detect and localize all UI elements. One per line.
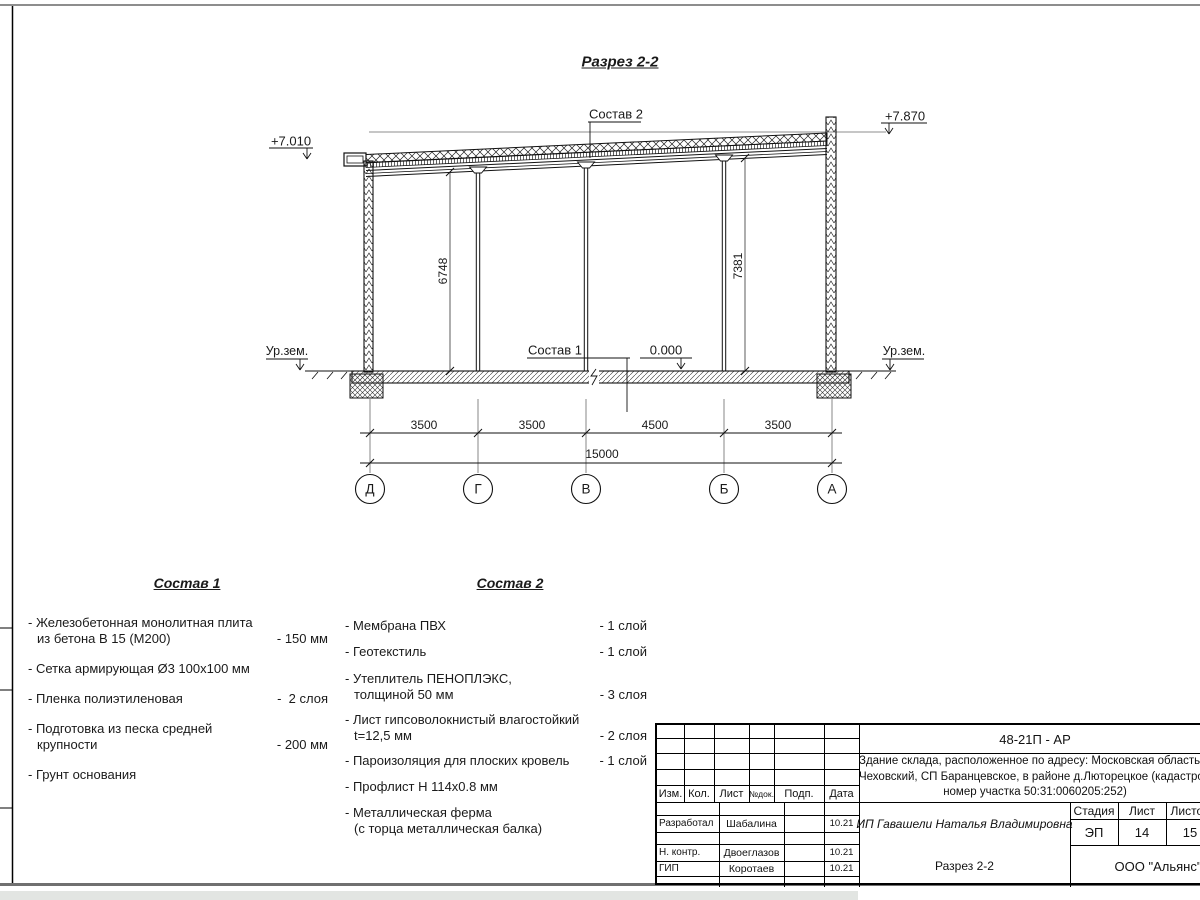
- axis-label-g: Г: [474, 482, 481, 497]
- drawing-sheet: { "sheet": { "title": "Разрез 2-2" }, "s…: [0, 0, 1200, 900]
- col-podp: Подп.: [774, 785, 824, 802]
- layer-qty: - 1 слой: [599, 753, 647, 769]
- list-item: - Подготовка из песка средней крупности …: [28, 721, 328, 752]
- sheets-total: 15: [1166, 819, 1200, 845]
- layer-name: - Утеплитель ПЕНОПЛЭКС, толщиной 50 мм: [345, 671, 512, 702]
- elevation-left-label: +7.010: [271, 134, 311, 149]
- layer-qty: - 1 слой: [599, 644, 647, 660]
- row-name: Шабалина: [719, 815, 784, 832]
- ground-level-label-right: Ур.зем.: [883, 344, 925, 358]
- list-item: - Мембрана ПВХ - 1 слой: [345, 618, 647, 634]
- row-date: 10.21: [824, 861, 859, 876]
- col-ndok: №док.: [749, 785, 774, 802]
- columns: [470, 155, 733, 371]
- zero-level-arrow: [677, 358, 685, 369]
- col-data: Дата: [824, 785, 859, 802]
- roof-assembly: [344, 132, 886, 177]
- col-kol: Кол.: [684, 785, 714, 802]
- address-line: номер участка 50:31:0060205:252): [859, 785, 1200, 801]
- drawing-name: Разрез 2-2: [859, 845, 1070, 887]
- col-list: Лист: [714, 785, 749, 802]
- list-item: - Пароизоляция для плоских кровель - 1 с…: [345, 753, 647, 769]
- layer-qty: - 150 мм: [277, 631, 328, 647]
- address-line: Здание склада, расположенное по адресу: …: [859, 754, 1200, 770]
- elevation-arrow-right: [885, 123, 893, 134]
- sheet-label: Лист: [1118, 802, 1166, 819]
- layer-name: - Подготовка из песка средней крупности: [28, 721, 212, 752]
- floor-slab: [305, 369, 896, 398]
- total-dim: 15000: [585, 447, 618, 461]
- ground-level-label-left: Ур.зем.: [266, 344, 308, 358]
- sheets-label: Листов: [1166, 802, 1200, 819]
- address-line: Чеховский, СП Баранцевское, в районе д.Л…: [859, 770, 1200, 786]
- layer-name: - Сетка армирующая Ø3 100х100 мм: [28, 661, 250, 677]
- elevation-right-label: +7.870: [885, 109, 925, 124]
- drawing-title: Разрез 2-2: [581, 54, 658, 71]
- title-block: Изм. Кол. Лист №док. Подп. Дата Разработ…: [655, 723, 1200, 885]
- company-name: ООО "Альянс": [1070, 845, 1200, 887]
- stage-value: ЭП: [1070, 819, 1118, 845]
- list-item: - Металлическая ферма (с торца металличе…: [345, 805, 647, 836]
- layer-name: - Железобетонная монолитная плита из бет…: [28, 615, 253, 646]
- layer-name: - Грунт основания: [28, 767, 136, 783]
- list-item: - Грунт основания: [28, 767, 328, 783]
- list-item: - Лист гипсоволокнистый влагостойкий t=1…: [345, 712, 647, 743]
- row-name: Коротаев: [719, 861, 784, 876]
- layer-qty: - 3 слоя: [600, 687, 647, 703]
- axis-label-b: Б: [720, 482, 729, 497]
- list-item: - Геотекстиль - 1 слой: [345, 644, 647, 660]
- axis-label-v: В: [581, 482, 590, 497]
- row-date: 10.21: [824, 815, 859, 832]
- stage-label: Стадия: [1070, 802, 1118, 819]
- axis-label-a: А: [827, 482, 836, 497]
- list-item: - Утеплитель ПЕНОПЛЭКС, толщиной 50 мм -…: [345, 671, 647, 702]
- span-dim-3: 4500: [642, 418, 669, 432]
- row-role: Н. контр.: [659, 844, 719, 861]
- layer-name: - Пароизоляция для плоских кровель: [345, 753, 569, 769]
- row-date: 10.21: [824, 844, 859, 861]
- span-dim-1: 3500: [411, 418, 438, 432]
- height-dimensions: [446, 154, 749, 375]
- layer1-callout-label: Состав 1: [528, 343, 582, 358]
- elevation-arrow-left: [303, 148, 311, 159]
- layer-name: - Геотекстиль: [345, 644, 427, 660]
- row-name: Двоеглазов: [719, 844, 784, 861]
- span-dim-2: 3500: [519, 418, 546, 432]
- layer-name: - Мембрана ПВХ: [345, 618, 446, 634]
- layer-name: - Профлист Н 114х0.8 мм: [345, 779, 498, 795]
- walls: [364, 117, 836, 372]
- layer-name: - Пленка полиэтиленовая: [28, 691, 183, 707]
- layer-qty: - 1 слой: [599, 618, 647, 634]
- ground-arrow-left: [296, 359, 304, 370]
- layer-name: - Металлическая ферма (с торца металличе…: [345, 805, 542, 836]
- layers2-title: Состав 2: [477, 575, 544, 591]
- layer-qty: - 2 слоя: [277, 691, 328, 707]
- list-item: - Пленка полиэтиленовая - 2 слоя: [28, 691, 328, 707]
- row-role: Разработал: [659, 815, 719, 832]
- layer2-callout-label: Состав 2: [589, 107, 643, 122]
- client-name: ИП Гавашели Наталья Владимировна: [859, 802, 1070, 845]
- col-izm: Изм.: [657, 785, 684, 802]
- zero-level-label: 0.000: [650, 343, 683, 358]
- layer-qty: - 2 слоя: [600, 728, 647, 744]
- row-role: ГИП: [659, 861, 719, 876]
- level-marks: [266, 122, 927, 412]
- height-dim-6748: 6748: [436, 258, 450, 285]
- list-item: - Железобетонная монолитная плита из бет…: [28, 615, 328, 646]
- list-item: - Сетка армирующая Ø3 100х100 мм: [28, 661, 328, 677]
- layer-qty: - 200 мм: [277, 737, 328, 753]
- axis-label-d: Д: [365, 482, 374, 497]
- layers1-title: Состав 1: [154, 575, 221, 591]
- document-code: 48-21П - АР: [859, 725, 1200, 753]
- list-item: - Профлист Н 114х0.8 мм: [345, 779, 647, 795]
- ground-arrow-right: [886, 359, 894, 370]
- layer-name: - Лист гипсоволокнистый влагостойкий t=1…: [345, 712, 579, 743]
- height-dim-7381: 7381: [731, 253, 745, 280]
- sheet-number: 14: [1118, 819, 1166, 845]
- project-address: Здание склада, расположенное по адресу: …: [859, 754, 1200, 802]
- span-dim-4: 3500: [765, 418, 792, 432]
